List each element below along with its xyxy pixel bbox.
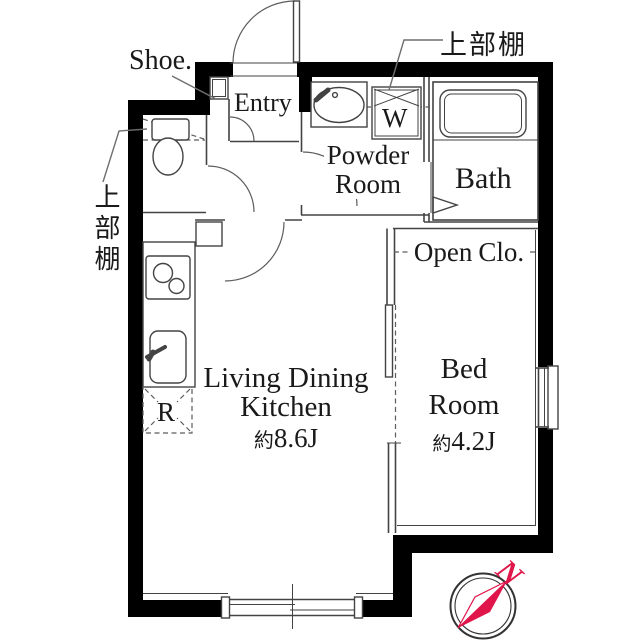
shoe-cabinet-label: Shoe.: [129, 45, 192, 77]
ldk-area-prefix: 約: [254, 430, 274, 452]
bedroom-window: [535, 366, 558, 429]
hall-door-arc: [230, 117, 254, 141]
bedroom-area-value: 4.2J: [451, 426, 495, 456]
floorplan-drawing: [0, 0, 640, 640]
entry-label: Entry: [234, 88, 292, 118]
ldk-door-arc: [225, 222, 284, 281]
open-closet-label: OpenClo.: [399, 237, 539, 268]
upper-shelf-top-label: 上部棚: [440, 23, 527, 62]
kitchen-sink-icon: [147, 331, 186, 383]
powder-room-label: Powder Room: [320, 141, 416, 198]
toilet-icon: [152, 119, 189, 175]
washbasin-icon: [311, 82, 367, 127]
bath-door-icon: [433, 197, 457, 213]
bathtub-icon: [433, 82, 538, 220]
shoe-cabinet: [210, 77, 228, 99]
bedroom-area-prefix: 約: [432, 434, 451, 455]
refrigerator-label: R: [157, 397, 175, 428]
sliding-door-panel: [386, 305, 393, 377]
upper-shelf-left-label: 上部棚: [87, 183, 124, 276]
floor-plan: Shoe. Entry 上部棚 W Bath Powder Room 上部棚 O…: [0, 0, 640, 640]
stove-icon: [146, 256, 190, 299]
ldk-label: Living Dining Kitchen 約8.6J: [200, 364, 372, 458]
toilet-door-arc: [208, 166, 254, 212]
ldk-area-value: 8.6J: [274, 423, 318, 453]
kitchen-column: [196, 222, 222, 246]
entry-door-leaf: [294, 1, 300, 62]
balcony-window: [222, 584, 363, 629]
washer-label: W: [382, 103, 407, 134]
bath-label: Bath: [455, 162, 512, 196]
bedroom-label: Bed Room 約4.2J: [418, 351, 510, 460]
entry-door-arc: [233, 1, 295, 63]
